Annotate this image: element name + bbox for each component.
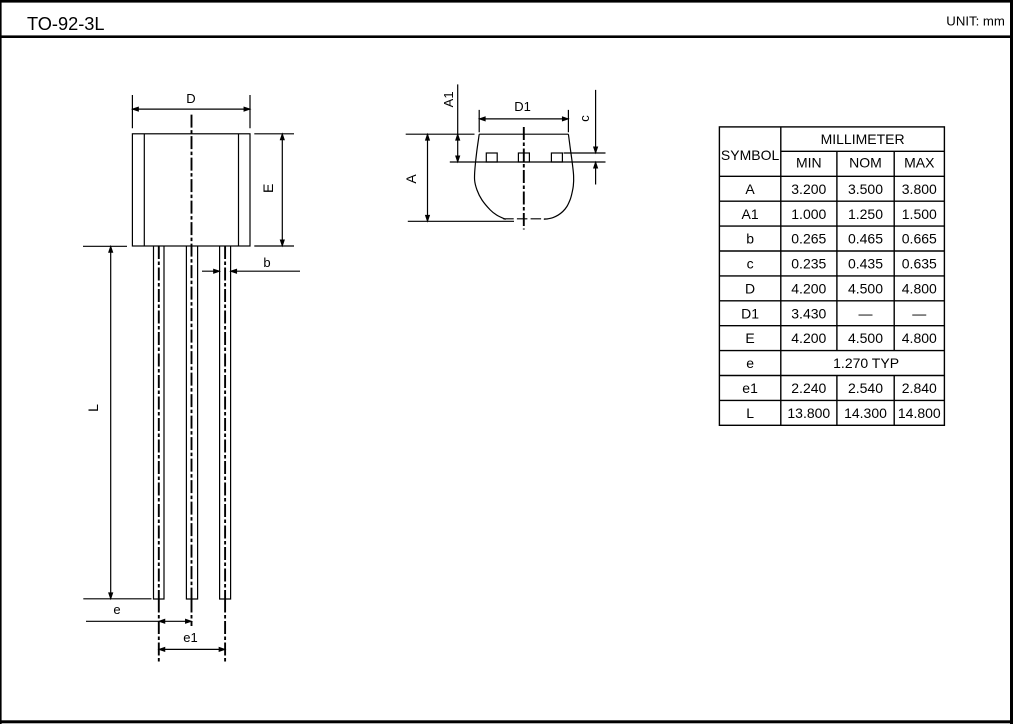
svg-text:14.800: 14.800 bbox=[898, 405, 941, 421]
svg-text:D: D bbox=[186, 91, 195, 106]
svg-text:2.540: 2.540 bbox=[848, 380, 883, 396]
svg-text:3.430: 3.430 bbox=[791, 305, 826, 321]
svg-text:e1: e1 bbox=[183, 630, 197, 645]
svg-text:b: b bbox=[263, 255, 270, 270]
svg-text:3.200: 3.200 bbox=[791, 181, 826, 197]
svg-text:0.235: 0.235 bbox=[791, 256, 826, 272]
svg-text:2.240: 2.240 bbox=[791, 380, 826, 396]
svg-text:SYMBOL: SYMBOL bbox=[721, 147, 780, 163]
svg-text:A1: A1 bbox=[441, 91, 456, 107]
svg-text:0.635: 0.635 bbox=[902, 256, 937, 272]
svg-text:1.270 TYP: 1.270 TYP bbox=[833, 355, 899, 371]
svg-text:—: — bbox=[912, 305, 926, 321]
svg-text:1.000: 1.000 bbox=[791, 206, 826, 222]
svg-text:0.435: 0.435 bbox=[848, 256, 883, 272]
svg-text:A: A bbox=[745, 181, 755, 197]
svg-text:1.250: 1.250 bbox=[848, 206, 883, 222]
svg-text:1.500: 1.500 bbox=[902, 206, 937, 222]
svg-text:MILLIMETER: MILLIMETER bbox=[821, 131, 905, 147]
svg-text:3.800: 3.800 bbox=[902, 181, 937, 197]
svg-text:TO-92-3L: TO-92-3L bbox=[27, 14, 105, 34]
svg-text:0.465: 0.465 bbox=[848, 231, 883, 247]
svg-text:4.500: 4.500 bbox=[848, 281, 883, 297]
svg-text:4.200: 4.200 bbox=[791, 330, 826, 346]
svg-text:L: L bbox=[85, 404, 101, 412]
svg-text:13.800: 13.800 bbox=[787, 405, 830, 421]
svg-text:b: b bbox=[746, 231, 754, 247]
svg-text:c: c bbox=[577, 115, 592, 122]
svg-text:0.665: 0.665 bbox=[902, 231, 937, 247]
svg-text:c: c bbox=[747, 256, 754, 272]
svg-text:D1: D1 bbox=[741, 305, 759, 321]
svg-text:MIN: MIN bbox=[796, 154, 822, 170]
svg-text:4.500: 4.500 bbox=[848, 330, 883, 346]
svg-text:—: — bbox=[859, 305, 873, 321]
svg-text:4.200: 4.200 bbox=[791, 281, 826, 297]
svg-text:E: E bbox=[745, 330, 754, 346]
svg-text:e1: e1 bbox=[742, 380, 758, 396]
svg-text:E: E bbox=[260, 184, 276, 193]
svg-text:MAX: MAX bbox=[904, 154, 935, 170]
svg-text:0.265: 0.265 bbox=[791, 231, 826, 247]
svg-text:NOM: NOM bbox=[849, 154, 882, 170]
svg-text:4.800: 4.800 bbox=[902, 330, 937, 346]
svg-text:4.800: 4.800 bbox=[902, 281, 937, 297]
svg-text:e: e bbox=[113, 602, 120, 617]
svg-text:L: L bbox=[746, 405, 754, 421]
svg-text:D: D bbox=[745, 281, 755, 297]
svg-text:2.840: 2.840 bbox=[902, 380, 937, 396]
svg-text:14.300: 14.300 bbox=[844, 405, 887, 421]
svg-text:UNIT: mm: UNIT: mm bbox=[946, 14, 1005, 29]
svg-text:A: A bbox=[403, 174, 419, 184]
svg-text:A1: A1 bbox=[742, 206, 759, 222]
svg-text:e: e bbox=[746, 355, 754, 371]
svg-text:D1: D1 bbox=[514, 99, 531, 114]
svg-text:3.500: 3.500 bbox=[848, 181, 883, 197]
